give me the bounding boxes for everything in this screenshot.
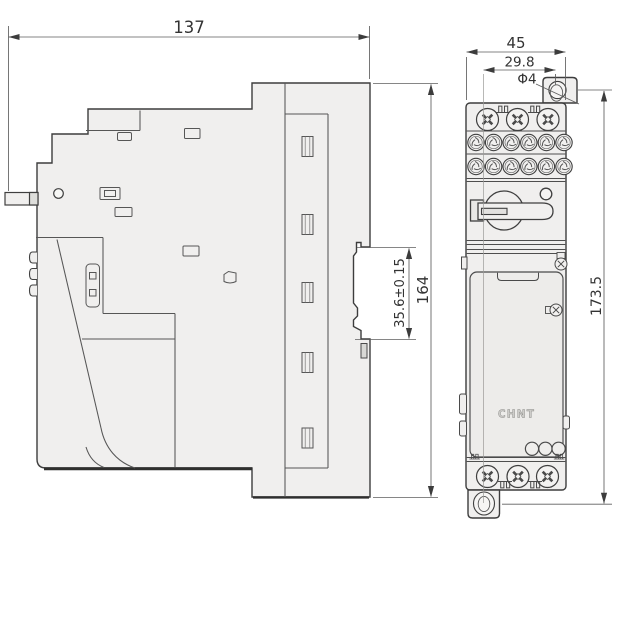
top-mounting-tab <box>543 78 577 104</box>
phillips-screw <box>477 466 499 488</box>
dim-label-29-8: 29.8 <box>504 55 534 71</box>
dim-label-137: 137 <box>173 18 205 37</box>
dimension-drawing-svg: 137 164 35.6±0.15 <box>0 0 621 621</box>
front-lower-panel: CHNT <box>470 253 567 458</box>
dim-din-notch: 35.6±0.15 <box>355 248 416 340</box>
technical-drawing-page: 137 164 35.6±0.15 <box>0 0 621 621</box>
phillips-screw <box>537 109 559 131</box>
dim-label-164: 164 <box>414 276 432 305</box>
side-edge-bumps <box>30 252 38 296</box>
din-clip-slot <box>361 344 367 359</box>
phillips-screw <box>507 466 529 488</box>
dim-label-173-5: 173.5 <box>589 276 605 316</box>
side-view-outline <box>37 83 370 497</box>
top-mounting-hole <box>549 81 566 98</box>
knob-handle-slot <box>482 208 508 214</box>
dim-label-45: 45 <box>506 34 525 52</box>
phillips-screw <box>507 109 529 131</box>
panel-clip-screw-1 <box>555 253 567 271</box>
side-view <box>5 83 370 497</box>
side-lever <box>5 193 38 206</box>
panel-indicator-holes <box>525 442 565 455</box>
dim-label-phi4: Φ4 <box>517 72 536 88</box>
dim-label-35-6: 35.6±0.15 <box>393 258 408 328</box>
indicator-button <box>540 188 552 200</box>
brand-logo: CHNT <box>498 409 535 421</box>
front-view: CHNT <box>460 78 578 519</box>
phillips-screw <box>477 109 499 131</box>
side-hole <box>54 189 64 199</box>
